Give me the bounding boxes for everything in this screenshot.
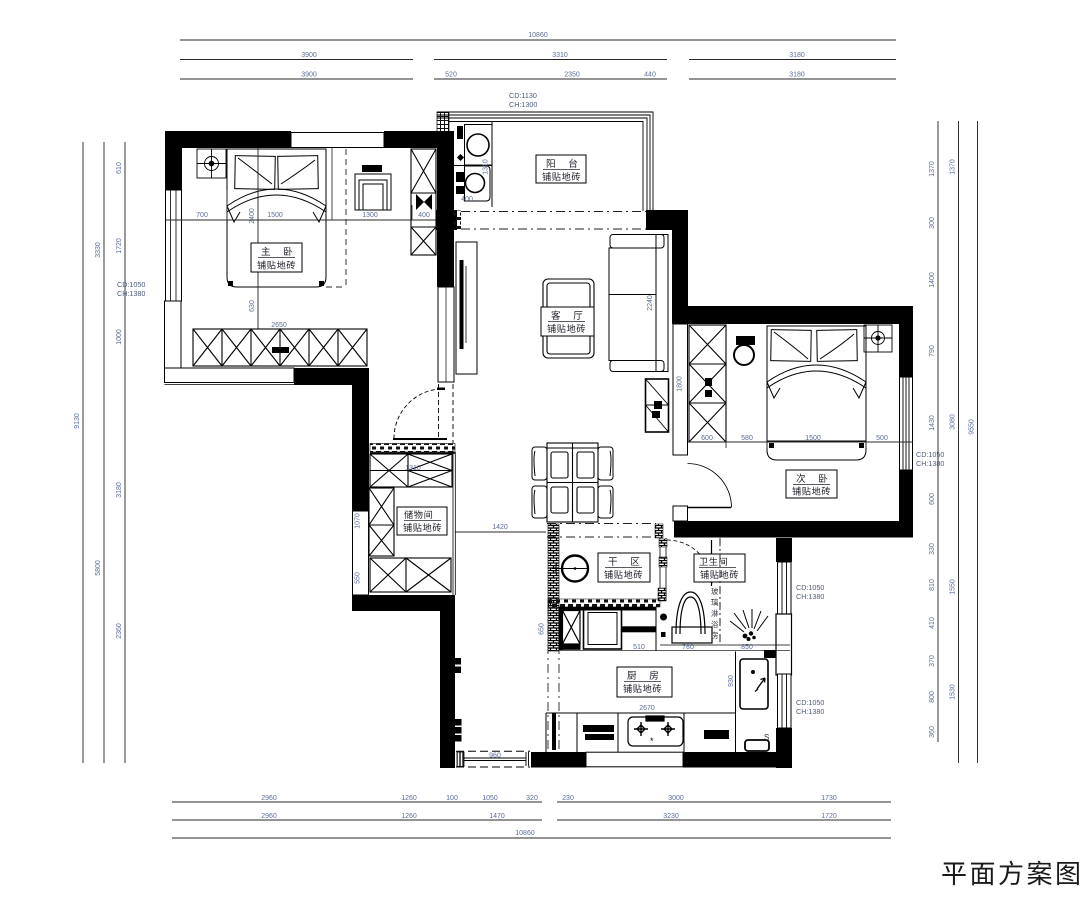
svg-text:510: 510	[633, 644, 645, 651]
svg-text:410: 410	[929, 617, 936, 629]
svg-text:2670: 2670	[639, 705, 655, 712]
svg-text:1550: 1550	[950, 579, 957, 595]
svg-text:1530: 1530	[950, 684, 957, 700]
svg-text:630: 630	[249, 300, 256, 312]
svg-text:550: 550	[355, 572, 362, 584]
svg-text:3080: 3080	[950, 414, 957, 430]
svg-text:CD:1130: CD:1130	[509, 91, 537, 100]
svg-text:330: 330	[929, 543, 936, 555]
svg-text:铺贴地砖: 铺贴地砖	[623, 683, 662, 694]
svg-text:CD:1050: CD:1050	[916, 450, 944, 459]
svg-text:1300: 1300	[362, 212, 378, 219]
svg-text:600: 600	[929, 493, 936, 505]
svg-text:1260: 1260	[401, 813, 417, 820]
svg-text:3310: 3310	[552, 52, 568, 59]
svg-text:3180: 3180	[789, 72, 805, 79]
svg-text:810: 810	[929, 579, 936, 591]
svg-text:3000: 3000	[668, 795, 684, 802]
svg-text:960: 960	[489, 753, 501, 760]
svg-text:580: 580	[741, 435, 753, 442]
svg-text:3900: 3900	[301, 52, 317, 59]
svg-text:700: 700	[196, 212, 208, 219]
svg-text:次 卧: 次 卧	[796, 473, 833, 485]
svg-text:1370: 1370	[929, 161, 936, 177]
svg-text:10860: 10860	[515, 830, 535, 837]
svg-text:370: 370	[929, 655, 936, 667]
svg-text:3180: 3180	[116, 482, 123, 498]
svg-text:520: 520	[445, 72, 457, 79]
svg-text:主 卧: 主 卧	[261, 246, 298, 258]
svg-text:3180: 3180	[789, 52, 805, 59]
svg-text:400: 400	[418, 212, 430, 219]
svg-text:1430: 1430	[929, 415, 936, 431]
svg-text:平面方案图: 平面方案图	[941, 859, 1084, 889]
svg-text:CD:1050: CD:1050	[796, 698, 824, 707]
svg-text:铺贴地砖: 铺贴地砖	[792, 486, 831, 497]
svg-text:客 厅: 客 厅	[551, 310, 588, 322]
svg-text:铺贴地砖: 铺贴地砖	[542, 171, 581, 182]
svg-text:1000: 1000	[116, 329, 123, 345]
svg-text:360: 360	[929, 726, 936, 738]
svg-text:1800: 1800	[677, 376, 684, 392]
svg-text:230: 230	[562, 795, 574, 802]
svg-text:300: 300	[929, 217, 936, 229]
svg-text:2240: 2240	[647, 295, 654, 311]
svg-text:CH:1380: CH:1380	[916, 459, 944, 468]
svg-text:100: 100	[446, 795, 458, 802]
svg-text:CD:1050: CD:1050	[117, 280, 145, 289]
svg-text:2350: 2350	[564, 72, 580, 79]
svg-text:1720: 1720	[116, 238, 123, 254]
svg-text:铺贴地砖: 铺贴地砖	[604, 569, 643, 580]
svg-text:CH:1380: CH:1380	[117, 289, 145, 298]
svg-text:1310: 1310	[483, 159, 490, 175]
svg-text:400: 400	[461, 196, 473, 203]
svg-text:3900: 3900	[301, 72, 317, 79]
svg-text:9130: 9130	[74, 413, 81, 429]
svg-text:卫生间: 卫生间	[699, 556, 728, 567]
svg-text:1500: 1500	[805, 435, 821, 442]
svg-text:610: 610	[116, 162, 123, 174]
svg-text:CD:1050: CD:1050	[796, 583, 824, 592]
svg-text:1400: 1400	[929, 272, 936, 288]
svg-text:3230: 3230	[663, 813, 679, 820]
svg-text:500: 500	[876, 435, 888, 442]
svg-text:800: 800	[929, 691, 936, 703]
svg-text:2360: 2360	[116, 623, 123, 639]
svg-text:CH:1380: CH:1380	[796, 592, 824, 601]
svg-text:320: 320	[526, 795, 538, 802]
svg-text:玻璃淋浴房: 玻璃淋浴房	[711, 586, 719, 640]
svg-text:2650: 2650	[271, 322, 287, 329]
svg-text:1370: 1370	[950, 159, 957, 175]
svg-text:930: 930	[728, 675, 735, 687]
svg-text:阳 台: 阳 台	[546, 158, 583, 170]
svg-text:9550: 9550	[969, 419, 976, 435]
svg-text:1070: 1070	[355, 513, 362, 529]
svg-text:440: 440	[644, 72, 656, 79]
svg-text:2400: 2400	[249, 208, 256, 224]
svg-text:1730: 1730	[821, 795, 837, 802]
svg-text:1260: 1260	[401, 795, 417, 802]
svg-text:600: 600	[701, 435, 713, 442]
svg-text:铺贴地砖: 铺贴地砖	[403, 522, 442, 533]
svg-text:2960: 2960	[261, 795, 277, 802]
svg-text:*: *	[650, 736, 654, 746]
svg-text:铺贴地砖: 铺贴地砖	[547, 323, 586, 334]
svg-text:650: 650	[539, 623, 546, 635]
svg-text:10860: 10860	[528, 32, 548, 39]
svg-text:2960: 2960	[261, 813, 277, 820]
svg-text:CH:1300: CH:1300	[509, 100, 537, 109]
svg-text:1420: 1420	[492, 524, 508, 531]
svg-text:CH:1380: CH:1380	[796, 707, 824, 716]
svg-text:1500: 1500	[267, 212, 283, 219]
svg-text:铺贴地砖: 铺贴地砖	[257, 260, 296, 271]
svg-text:1470: 1470	[489, 813, 505, 820]
svg-text:厨 房: 厨 房	[627, 670, 664, 682]
svg-text:5800: 5800	[95, 560, 102, 576]
svg-text:1050: 1050	[482, 795, 498, 802]
svg-text:3330: 3330	[95, 242, 102, 258]
svg-text:850: 850	[741, 644, 753, 651]
svg-text:1310: 1310	[405, 465, 421, 472]
svg-text:储物间: 储物间	[404, 509, 433, 520]
svg-text:干 区: 干 区	[608, 557, 645, 568]
svg-text:780: 780	[682, 644, 694, 651]
svg-text:790: 790	[929, 345, 936, 357]
svg-text:S: S	[764, 733, 769, 742]
svg-text:1720: 1720	[821, 813, 837, 820]
